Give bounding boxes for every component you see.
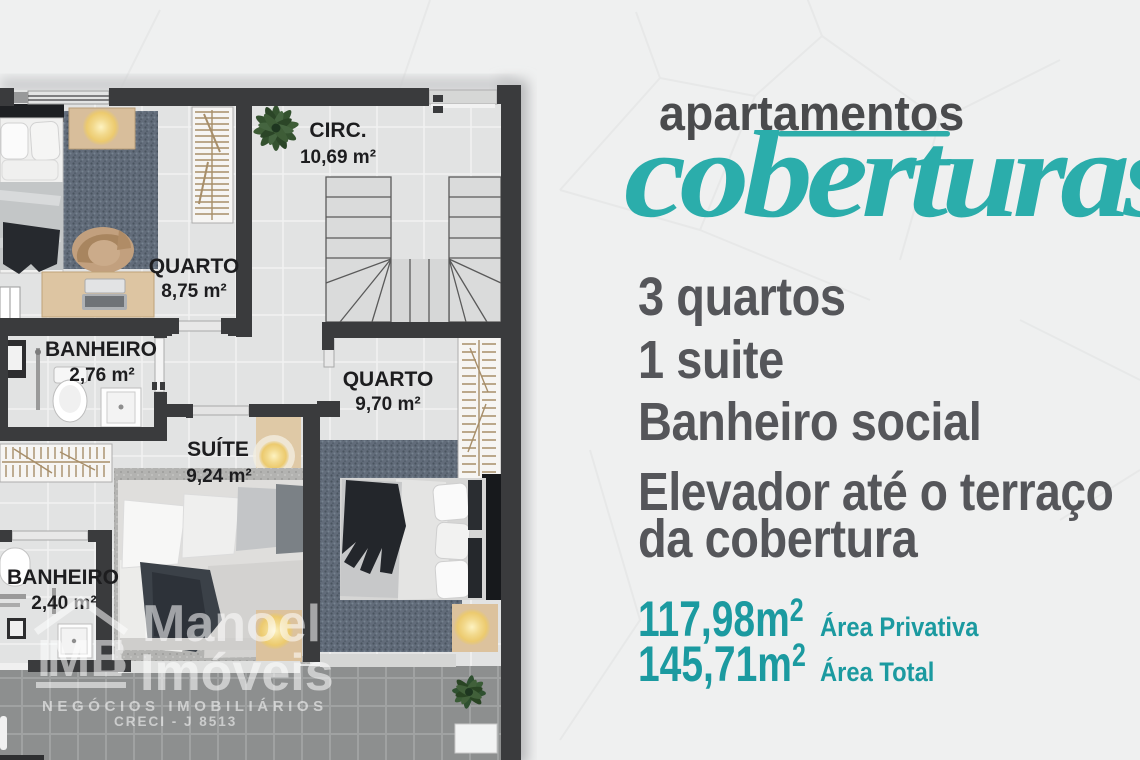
svg-text:CIRC.: CIRC. xyxy=(309,119,366,142)
svg-text:145,71m2: 145,71m2 xyxy=(638,635,806,692)
svg-text:9,24 m²: 9,24 m² xyxy=(186,466,251,487)
svg-text:8,75 m²: 8,75 m² xyxy=(161,281,226,302)
svg-text:Área Privativa: Área Privativa xyxy=(820,612,979,643)
svg-text:Área Total: Área Total xyxy=(820,657,934,688)
svg-text:Banheiro social: Banheiro social xyxy=(638,391,981,452)
svg-text:QUARTO: QUARTO xyxy=(149,255,240,278)
svg-text:1 suite: 1 suite xyxy=(638,329,784,390)
svg-text:CRECI - J 8513: CRECI - J 8513 xyxy=(114,714,237,729)
svg-text:QUARTO: QUARTO xyxy=(343,368,434,391)
svg-text:9,70 m²: 9,70 m² xyxy=(355,394,420,415)
svg-text:SUÍTE: SUÍTE xyxy=(187,438,249,461)
svg-text:10,69 m²: 10,69 m² xyxy=(300,147,376,168)
svg-text:NEGÓCIOS IMOBILIÁRIOS: NEGÓCIOS IMOBILIÁRIOS xyxy=(42,697,328,715)
svg-text:BANHEIRO: BANHEIRO xyxy=(7,566,119,589)
svg-text:coberturas: coberturas xyxy=(624,105,1140,243)
svg-text:da cobertura: da cobertura xyxy=(638,508,919,569)
svg-text:2,76 m²: 2,76 m² xyxy=(69,365,134,386)
svg-text:MB: MB xyxy=(47,630,128,688)
svg-text:3 quartos: 3 quartos xyxy=(638,266,846,327)
svg-text:Imóveis: Imóveis xyxy=(140,644,334,702)
svg-text:BANHEIRO: BANHEIRO xyxy=(45,338,157,361)
